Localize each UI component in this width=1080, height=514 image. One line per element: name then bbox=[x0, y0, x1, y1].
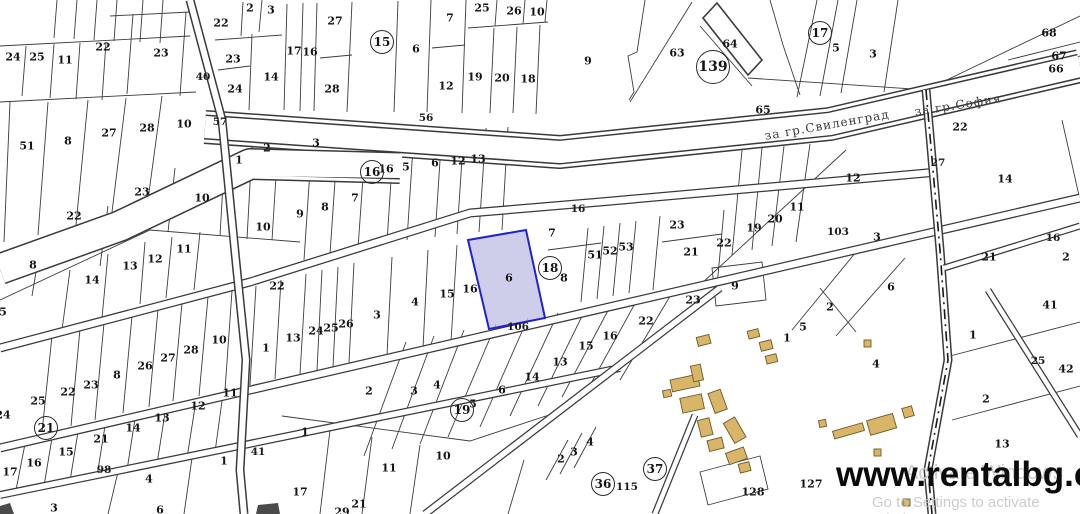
roads-layer bbox=[0, 0, 1080, 514]
activate-settings-text: Go to Settings to activate Windows. bbox=[872, 494, 1080, 514]
map-fragments bbox=[0, 503, 280, 514]
site-watermark: www.rentalbg.com bbox=[836, 455, 1080, 495]
map-canvas[interactable] bbox=[0, 0, 1080, 514]
highlighted-parcel[interactable] bbox=[468, 230, 545, 329]
cadastral-map[interactable]: 2425112223518272810232223241417162728671… bbox=[0, 0, 1080, 514]
parcel-lines-layer bbox=[0, 0, 1080, 514]
